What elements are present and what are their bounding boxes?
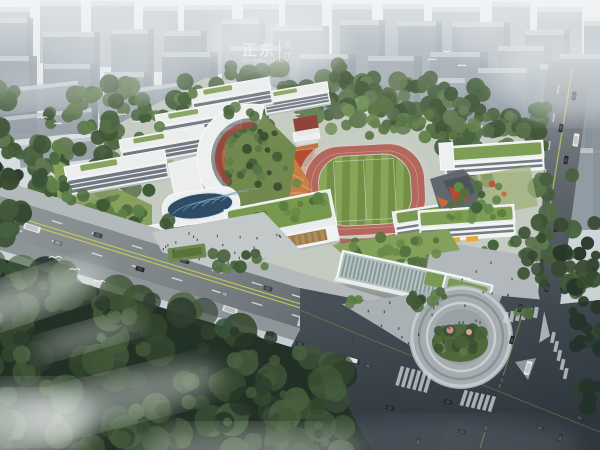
svg-text:正东: 正东	[242, 41, 276, 59]
svg-text:ZET DONG DESIGN: ZET DONG DESIGN	[242, 58, 288, 63]
svg-text:设: 设	[283, 40, 292, 50]
